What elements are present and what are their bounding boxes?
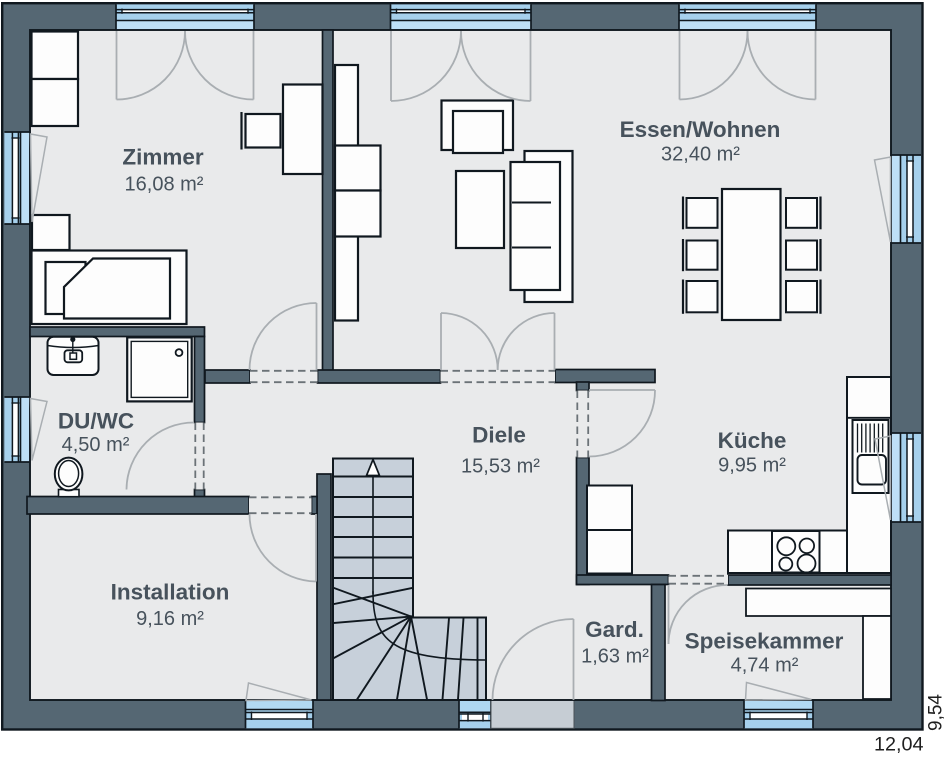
svg-text:Gard.: Gard. [585, 617, 644, 642]
svg-text:Diele: Diele [472, 423, 526, 448]
svg-text:4,50 m²: 4,50 m² [62, 434, 130, 456]
svg-text:Essen/Wohnen: Essen/Wohnen [620, 117, 781, 142]
svg-text:32,40 m²: 32,40 m² [661, 144, 740, 166]
svg-text:Speisekammer: Speisekammer [685, 629, 844, 654]
svg-text:Installation: Installation [111, 580, 230, 605]
svg-text:9,16 m²: 9,16 m² [136, 608, 204, 630]
svg-text:Küche: Küche [718, 428, 787, 453]
svg-text:DU/WC: DU/WC [58, 409, 134, 434]
svg-text:15,53 m²: 15,53 m² [461, 456, 540, 478]
svg-text:Zimmer: Zimmer [122, 145, 204, 170]
svg-text:9,95 m²: 9,95 m² [718, 455, 786, 477]
svg-text:12,04: 12,04 [874, 734, 924, 756]
svg-text:9,54: 9,54 [926, 694, 947, 731]
svg-text:4,74 m²: 4,74 m² [731, 655, 799, 677]
svg-text:1,63 m²: 1,63 m² [581, 646, 649, 668]
svg-text:16,08 m²: 16,08 m² [125, 174, 204, 196]
